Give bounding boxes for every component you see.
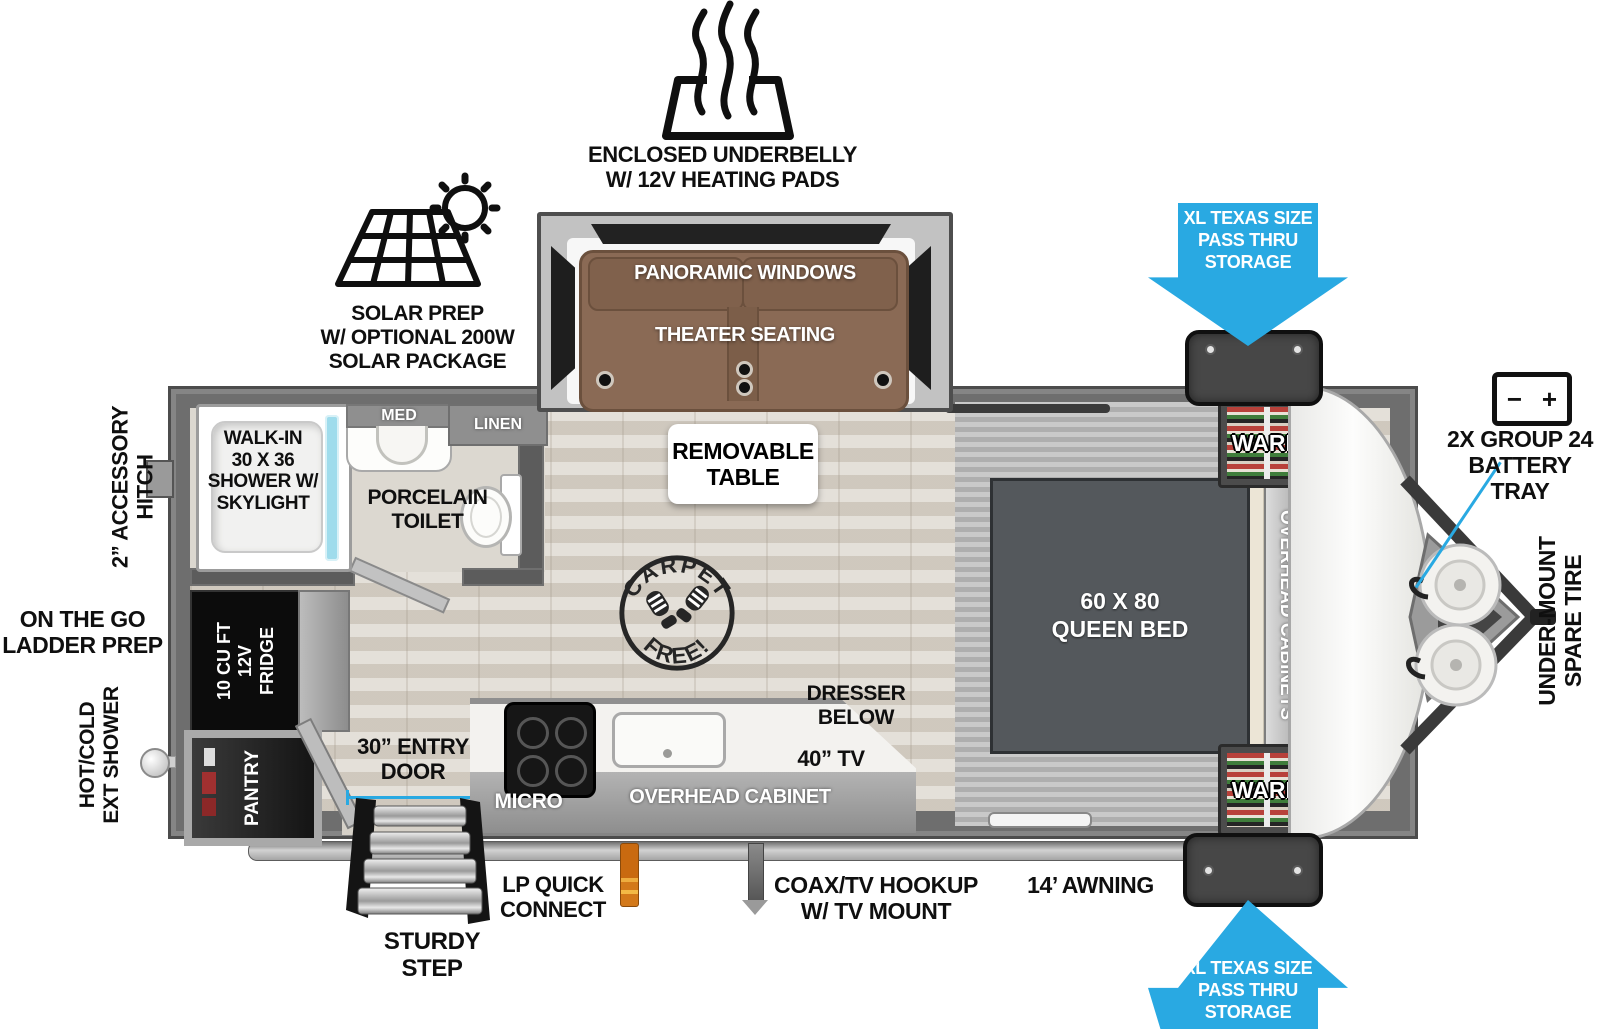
tv-label: 40” TV (786, 746, 876, 771)
battery-icon: − + (1492, 372, 1572, 426)
cupholder (736, 361, 753, 378)
vanity: MED (346, 404, 452, 472)
carpet-free-stamp: CARPET FREE! (612, 550, 742, 678)
lp-quick-connect-label: LP QUICK CONNECT (492, 872, 614, 922)
overhead-cabinet-label: OVERHEAD CABINET (600, 786, 860, 809)
pantry-item (202, 772, 216, 794)
burner (517, 755, 549, 787)
med-label: MED (381, 407, 417, 425)
cooktop (504, 702, 596, 798)
fridge: 10 CU FT 12V FRIDGE (190, 590, 302, 732)
theater-slideout: PANORAMIC WINDOWS THEATER SEATING (537, 212, 953, 412)
cupholder (874, 371, 892, 389)
battery-plus: + (1542, 384, 1557, 415)
screw (1292, 865, 1303, 876)
ext-shower-label: HOT/COLD EXT SHOWER (76, 670, 124, 840)
pass-thru-compartment-bottom (1183, 833, 1323, 907)
screw (1292, 344, 1303, 355)
floorplan: ENCLOSED UNDERBELLY W/ 12V HEATING PADS … (0, 0, 1600, 1029)
pantry-item (202, 798, 216, 816)
linen-closet: LINEN (448, 404, 548, 446)
entry-door-label: 30” ENTRY DOOR (348, 734, 478, 784)
battery-minus: − (1507, 384, 1522, 415)
med-cabinet: MED (346, 404, 452, 428)
sturdy-step (340, 798, 492, 926)
pantry-label: PANTRY (233, 738, 273, 838)
panoramic-windows-label: PANORAMIC WINDOWS (581, 262, 909, 285)
fridge-cabinet-side (298, 590, 350, 732)
center-console (727, 307, 759, 401)
accessory-hitch-label: 2” ACCESSORY HITCH (108, 395, 158, 580)
bathroom-wall-bottom-right (462, 568, 544, 586)
ladder-prep-label: ON THE GO LADDER PREP (0, 606, 165, 658)
bedroom-window (945, 404, 1110, 413)
kitchen-sink (612, 712, 726, 768)
bath-sink (376, 426, 428, 465)
solar-callout: SOLAR PREP W/ OPTIONAL 200W SOLAR PACKAG… (290, 302, 545, 374)
removable-table: REMOVABLE TABLE (668, 424, 818, 504)
pantry: PANTRY (184, 730, 322, 846)
boot-print (643, 588, 679, 631)
battery-tray-label: 2X GROUP 24 BATTERY TRAY (1440, 426, 1600, 505)
burner (555, 755, 587, 787)
underbelly-callout: ENCLOSED UNDERBELLY W/ 12V HEATING PADS (525, 142, 920, 192)
heating-pads-icon (652, 0, 804, 140)
bottom-wall-window (988, 812, 1092, 828)
theater-seating-label: THEATER SEATING (581, 324, 909, 347)
pass-thru-arrow-bottom: XL TEXAS SIZE PASS THRU STORAGE (1148, 900, 1348, 1029)
lp-quick-connect-port (620, 843, 639, 907)
burner (555, 717, 587, 749)
slideout-window-right (907, 246, 931, 390)
solar-prep-icon (330, 172, 505, 302)
toilet-label: PORCELAIN TOILET (360, 486, 495, 534)
shower-label: WALK-IN 30 X 36 SHOWER W/ SKYLIGHT (196, 428, 330, 515)
screw (1205, 344, 1216, 355)
coax-hookup-flare (742, 900, 768, 915)
cupholder (736, 379, 753, 396)
queen-bed: 60 X 80 QUEEN BED (990, 478, 1250, 754)
pantry-item (204, 748, 215, 766)
cupholder (596, 371, 614, 389)
slideout-window-top (591, 224, 891, 244)
coax-label: COAX/TV HOOKUP W/ TV MOUNT (766, 872, 986, 924)
coax-hookup-port (748, 843, 764, 903)
linen-label: LINEN (474, 416, 522, 434)
screw (1203, 865, 1214, 876)
sturdy-step-label: STURDY STEP (372, 928, 492, 983)
slideout-window-left (551, 246, 575, 390)
exterior-shower-knob (140, 748, 170, 778)
burner (517, 717, 549, 749)
spare-tire-label: UNDER-MOUNT SPARE TIRE (1534, 526, 1586, 716)
pass-thru-arrow-top: XL TEXAS SIZE PASS THRU STORAGE (1148, 203, 1348, 346)
awning-label: 14’ AWNING (1018, 872, 1163, 898)
faucet (663, 749, 672, 758)
dresser-label: DRESSER BELOW (796, 682, 916, 730)
